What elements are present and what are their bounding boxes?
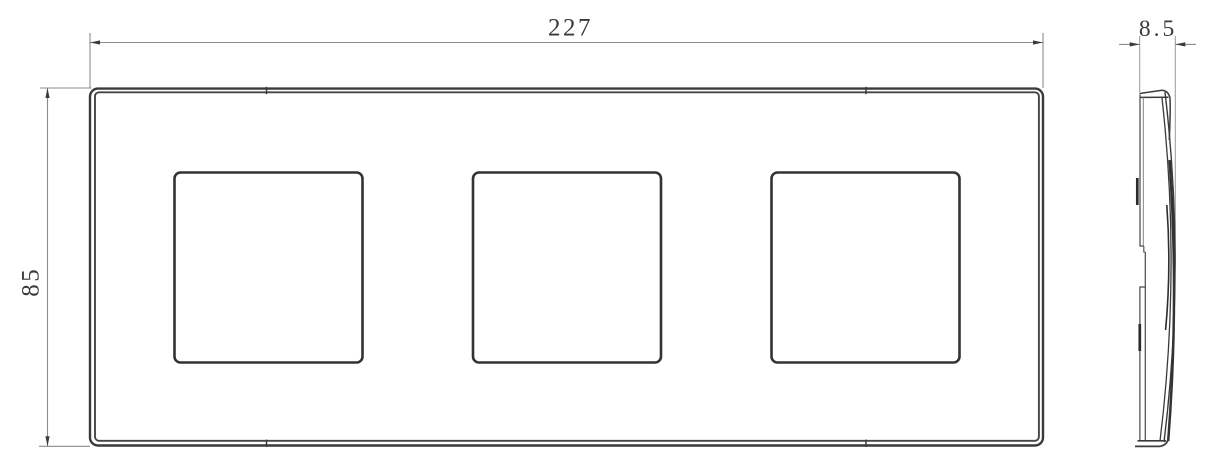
svg-text:8.5: 8.5 — [1139, 16, 1177, 42]
svg-text:227: 227 — [548, 15, 593, 42]
svg-text:85: 85 — [18, 267, 45, 297]
